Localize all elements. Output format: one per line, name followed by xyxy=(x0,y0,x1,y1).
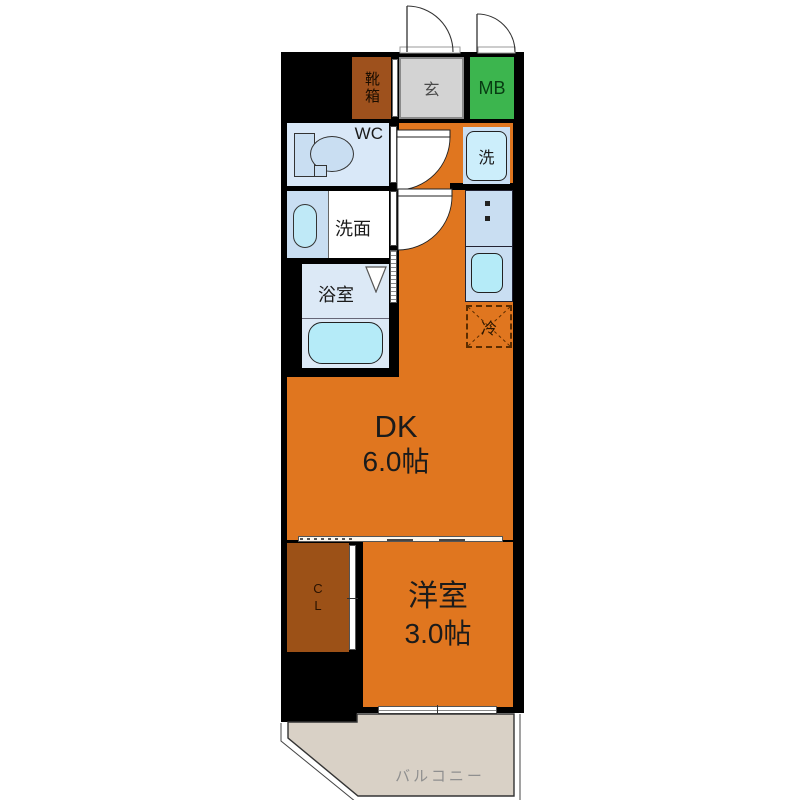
mb-door-arc-icon xyxy=(477,14,515,52)
mb-threshold xyxy=(478,47,515,53)
dk-door-leaf xyxy=(398,189,452,196)
wc-door-track xyxy=(390,126,397,183)
floorplan-canvas: 靴箱 玄 MB WC 洗面 浴室 洗 xyxy=(0,0,800,800)
hall-door-swing-icon xyxy=(397,137,450,190)
dk-door-swing-icon xyxy=(398,196,452,250)
entrance-threshold xyxy=(400,47,460,53)
balcony-label: バルコニー xyxy=(395,768,485,785)
plan-overlay xyxy=(0,0,800,800)
balcony-label-wrap: バルコニー xyxy=(360,765,520,786)
entrance-door-arc-icon xyxy=(407,6,453,52)
hall-door-leaf xyxy=(397,130,450,137)
bath-door-hatch xyxy=(390,250,397,303)
washroom-door-track xyxy=(390,191,397,246)
